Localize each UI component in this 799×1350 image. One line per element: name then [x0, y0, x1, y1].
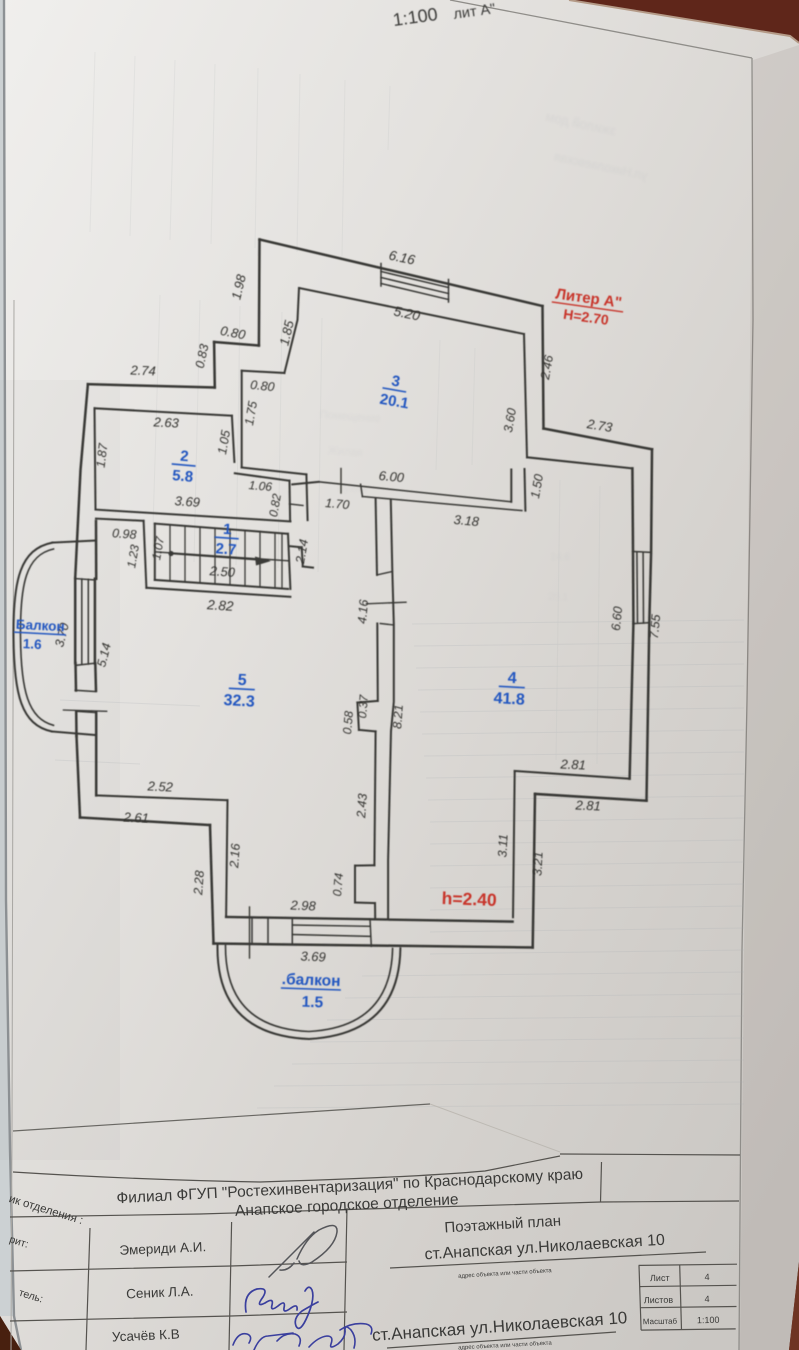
svg-text:1: 1: [223, 521, 233, 539]
svg-text:3.21: 3.21: [530, 851, 545, 876]
svg-text:2.43: 2.43: [354, 793, 370, 819]
svg-text:20.1: 20.1: [548, 592, 568, 604]
svg-text:14.6: 14.6: [550, 552, 570, 564]
svg-text:1.5: 1.5: [301, 994, 324, 1012]
svg-text:1:100: 1:100: [697, 1315, 720, 1325]
svg-text:0.37: 0.37: [355, 693, 371, 719]
svg-text:6.60: 6.60: [609, 606, 625, 632]
svg-text:1.6: 1.6: [22, 636, 42, 652]
svg-text:2.82: 2.82: [206, 597, 235, 614]
svg-text:6.00: 6.00: [378, 468, 405, 485]
svg-text:2.98: 2.98: [289, 898, 317, 914]
svg-text:4: 4: [704, 1294, 709, 1304]
svg-text:4: 4: [704, 1272, 709, 1282]
svg-text:2: 2: [179, 448, 189, 466]
svg-text:7.55: 7.55: [647, 614, 663, 640]
svg-text:0.98: 0.98: [112, 526, 137, 542]
svg-text:2.61: 2.61: [122, 809, 149, 825]
svg-text:2.81: 2.81: [574, 797, 601, 813]
svg-text:2.52: 2.52: [146, 778, 174, 794]
svg-text:h=2.40: h=2.40: [441, 888, 497, 910]
svg-text:.балкон: .балкон: [282, 971, 341, 990]
svg-text:2.63: 2.63: [152, 414, 180, 430]
svg-text:Жилая: Жилая: [327, 445, 363, 459]
svg-text:2.74: 2.74: [129, 363, 156, 379]
svg-text:2.7: 2.7: [215, 540, 237, 558]
svg-text:2.81: 2.81: [559, 756, 586, 772]
svg-text:Усачёв К.В: Усачёв К.В: [112, 1327, 180, 1345]
svg-text:Листов: Листов: [644, 1295, 674, 1306]
svg-text:2.16: 2.16: [227, 843, 243, 869]
svg-text:32.3: 32.3: [223, 692, 255, 711]
svg-text:4: 4: [507, 670, 517, 687]
svg-text:Масштаб: Масштаб: [643, 1317, 678, 1327]
svg-text:3.69: 3.69: [300, 949, 326, 965]
svg-text:0.58: 0.58: [340, 710, 356, 735]
svg-text:5.8: 5.8: [172, 467, 194, 486]
svg-text:8.21: 8.21: [390, 704, 406, 729]
svg-text:3.18: 3.18: [453, 512, 480, 529]
svg-text:Сеник Л.А.: Сеник Л.А.: [126, 1284, 194, 1302]
svg-text:3.69: 3.69: [174, 493, 200, 510]
svg-text:2.50: 2.50: [208, 563, 236, 580]
svg-text:Балкон: Балкон: [15, 617, 64, 635]
svg-text:5: 5: [237, 672, 247, 689]
svg-text:3.11: 3.11: [495, 834, 510, 858]
svg-text:Лист: Лист: [650, 1273, 670, 1283]
svg-text:41.8: 41.8: [493, 690, 525, 709]
svg-text:1.06: 1.06: [248, 478, 273, 494]
svg-text:4.16: 4.16: [355, 599, 371, 625]
svg-text:0.74: 0.74: [330, 872, 346, 897]
svg-text:0.80: 0.80: [250, 378, 276, 394]
svg-text:1.70: 1.70: [325, 496, 351, 512]
svg-text:2.28: 2.28: [191, 870, 207, 896]
